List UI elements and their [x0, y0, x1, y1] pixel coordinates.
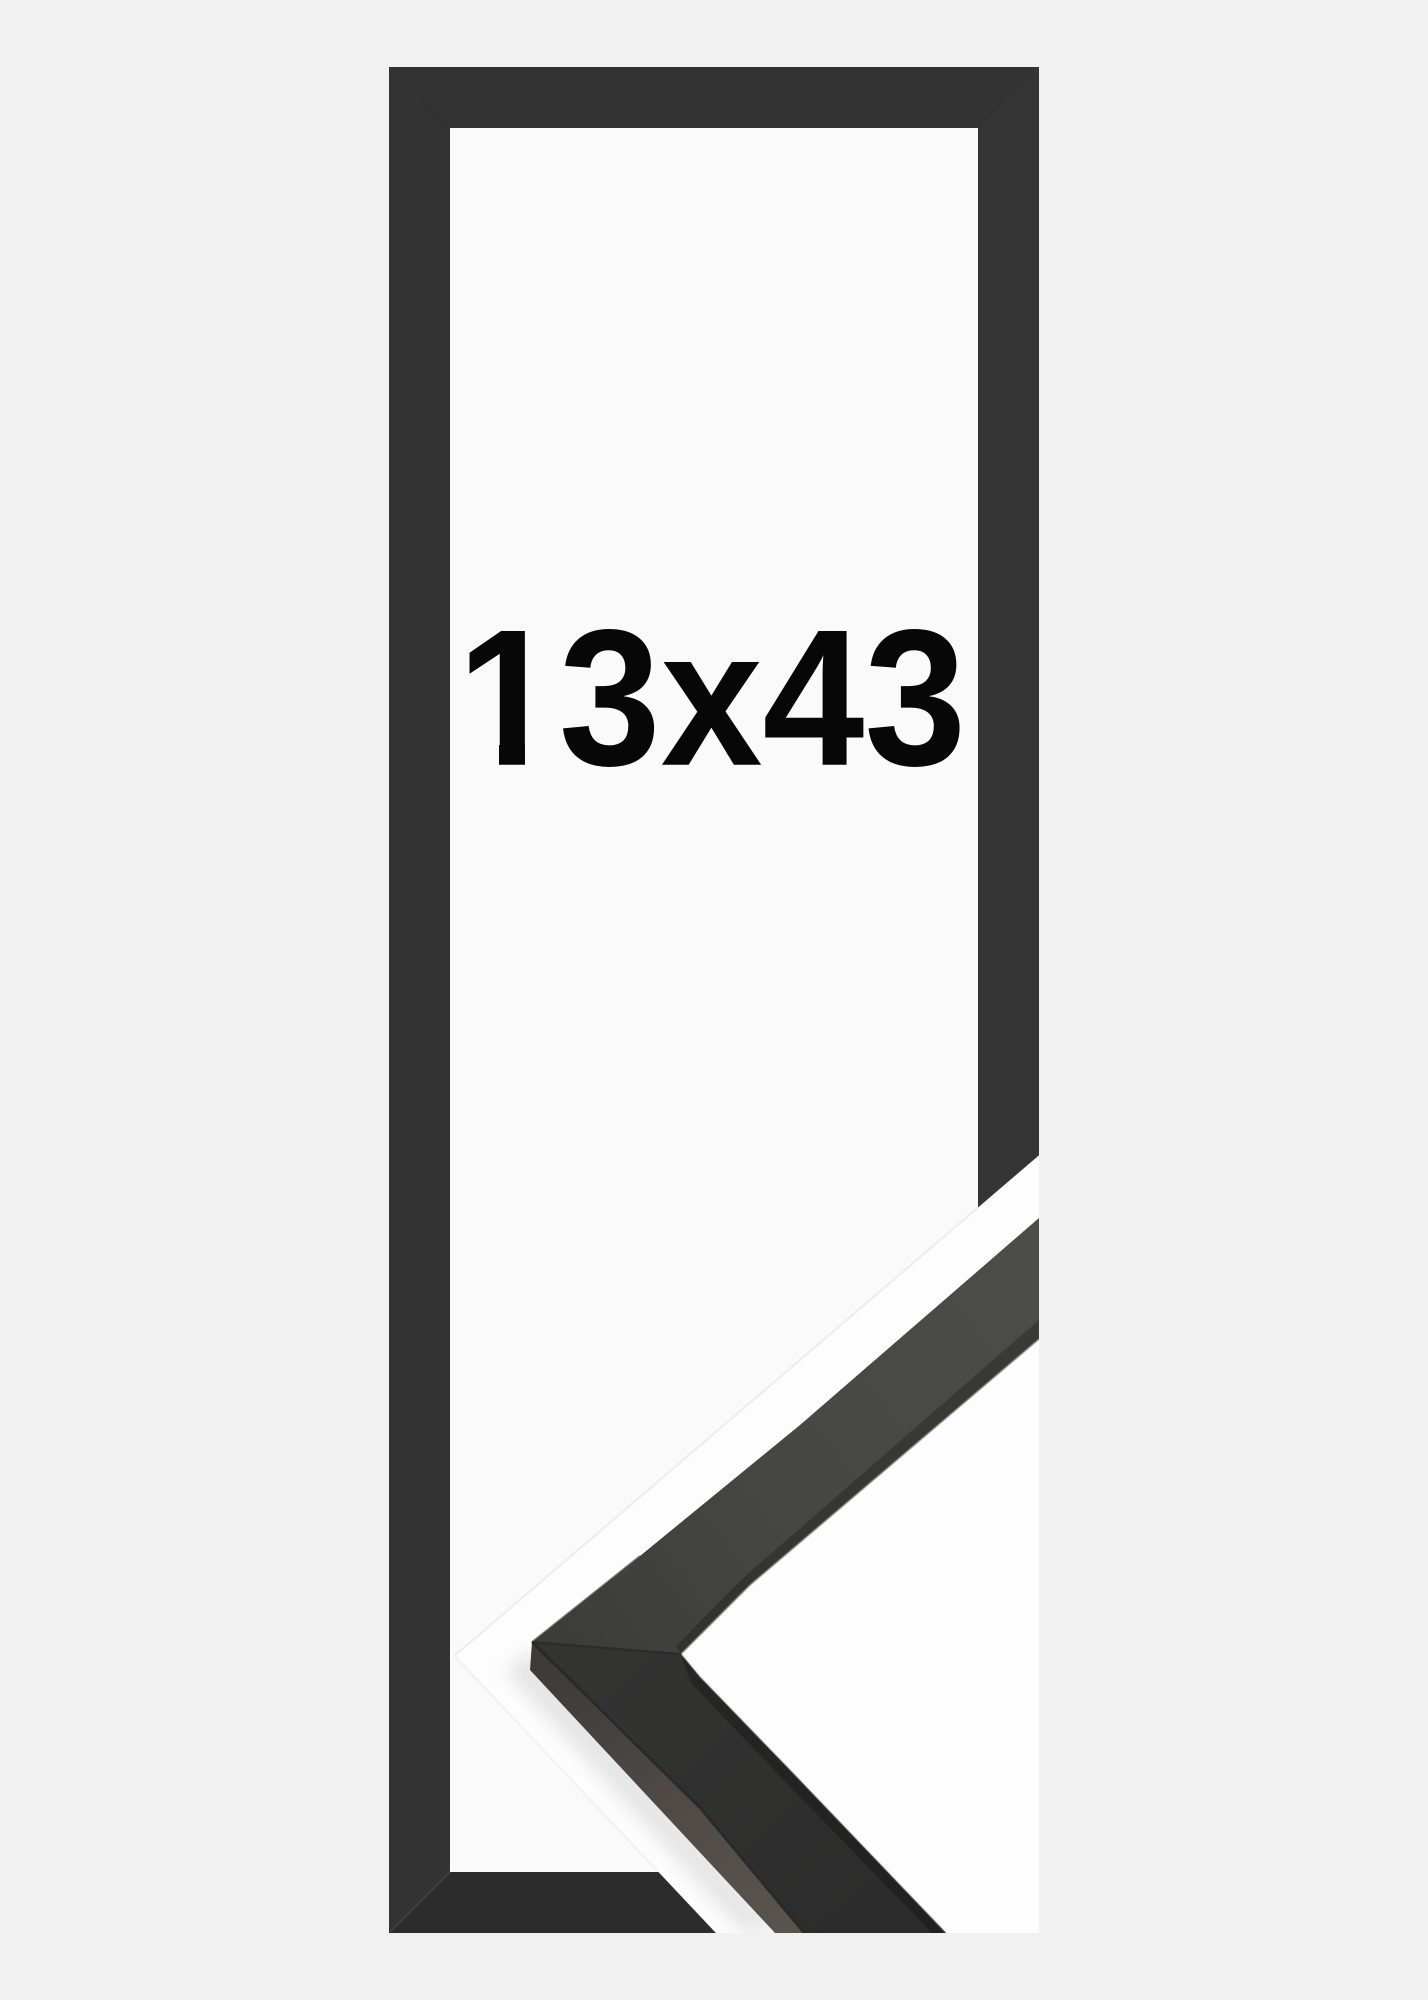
- svg-text:13x43: 13x43: [457, 590, 966, 807]
